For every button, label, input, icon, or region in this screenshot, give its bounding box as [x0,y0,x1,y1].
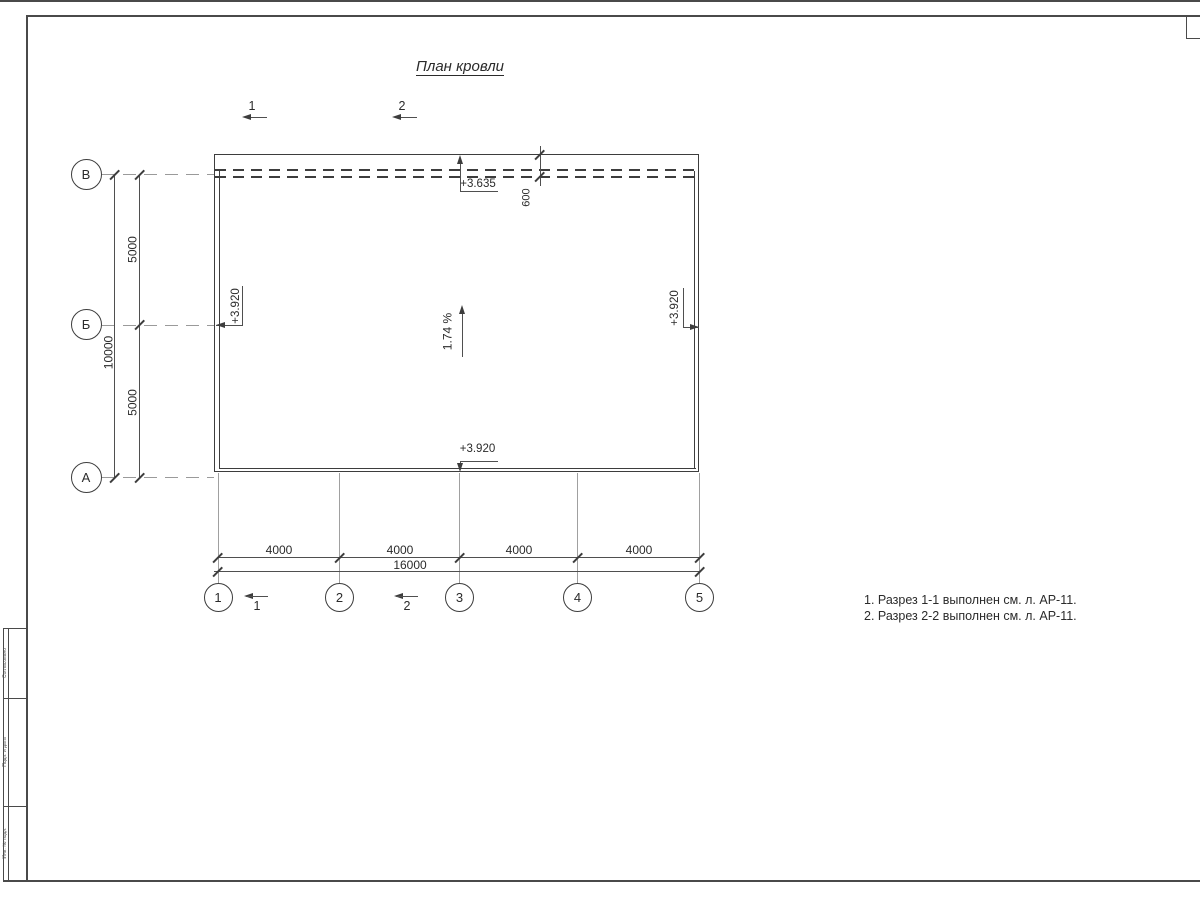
axis-bubble-row-b: Б [71,309,102,340]
dim-line-horizontal-total [214,571,700,572]
stamp-label-bottom: Инв. № подл. [3,813,9,873]
roof-outline [214,154,699,472]
elevation-left-arrow-icon [216,322,225,328]
grid-line-row-a [102,477,214,478]
stamp-label-top: Согласовано [3,633,9,693]
grid-line-col-4 [577,473,578,583]
grid-line-col-2 [339,473,340,583]
section-mark-2-bottom-line [396,596,418,597]
dim-line-vertical-segments [139,175,140,479]
page-title: План кровли [395,58,525,75]
frame-bottom-line [3,880,1200,882]
grid-line-col-1 [218,473,219,583]
axis-bubble-col-4: 4 [563,583,592,612]
elevation-ridge-flag-line [460,191,498,192]
section-mark-2-top-arrow-icon [392,114,401,120]
dim-value-total-vertical: 10000 [103,322,116,382]
section-mark-1-bottom-label: 1 [249,599,265,613]
elevation-left-value: +3.920 [230,286,242,326]
dim-value-4000-3: 4000 [494,544,544,557]
section-mark-2-top-label: 2 [394,99,410,113]
axis-bubble-col-1: 1 [204,583,233,612]
dim-value-4000-1: 4000 [254,544,304,557]
stamp-divider-3 [3,806,27,807]
parapet-inner-right-line [694,171,695,469]
dim-value-4000-2: 4000 [375,544,425,557]
hidden-edge-dashed-line-1 [215,169,699,171]
axis-bubble-col-2: 2 [325,583,354,612]
elevation-ridge-arrow-icon [457,155,463,164]
elevation-right-arrow-icon [690,324,699,330]
section-mark-2-bottom-label: 2 [399,599,415,613]
grid-line-row-b [102,325,214,326]
slope-arrow-line [462,309,463,357]
frame-left-line [26,15,28,881]
section-mark-1-bottom-line [246,596,268,597]
corner-reference-box [1186,15,1200,39]
dim-value-parapet: 600 [521,177,534,217]
elevation-ridge-value: +3.635 [457,178,499,190]
note-line-2: 2. Разрез 2-2 выполнен см. л. АР-11. [864,609,1077,624]
axis-bubble-col-3: 3 [445,583,474,612]
grid-line-row-v [102,174,214,175]
axis-bubble-col-5: 5 [685,583,714,612]
grid-line-col-3 [459,473,460,583]
stamp-divider-2 [3,698,27,699]
elevation-bottom-flag-line [460,461,498,462]
stamp-label-middle: Подп. и дата [3,722,9,782]
dim-value-total-horizontal: 16000 [385,559,435,572]
section-mark-1-top-arrow-icon [242,114,251,120]
dim-value-4000-4: 4000 [614,544,664,557]
parapet-inner-left-line [219,171,220,469]
note-line-1: 1. Разрез 1-1 выполнен см. л. АР-11. [864,593,1077,608]
slope-value: 1.74 % [442,306,455,358]
frame-top-line [26,15,1200,17]
sheet-edge-bottom [0,0,1200,2]
elevation-left-flag-line [242,286,243,326]
dim-value-5000-upper: 5000 [127,224,140,274]
dim-value-5000-lower: 5000 [127,377,140,427]
stamp-divider-1 [3,628,27,629]
grid-line-col-5 [699,473,700,583]
axis-bubble-row-v: В [71,159,102,190]
drawing-sheet: Согласовано Подп. и дата Инв. № подл. Пл… [0,0,1200,900]
axis-bubble-row-a: А [71,462,102,493]
elevation-bottom-arrow-icon [457,463,463,472]
elevation-bottom-value: +3.920 [457,443,499,455]
section-mark-1-top-label: 1 [244,99,260,113]
elevation-right-flag-line [683,288,684,328]
elevation-right-value: +3.920 [669,288,681,328]
slope-arrow-icon [459,305,465,314]
